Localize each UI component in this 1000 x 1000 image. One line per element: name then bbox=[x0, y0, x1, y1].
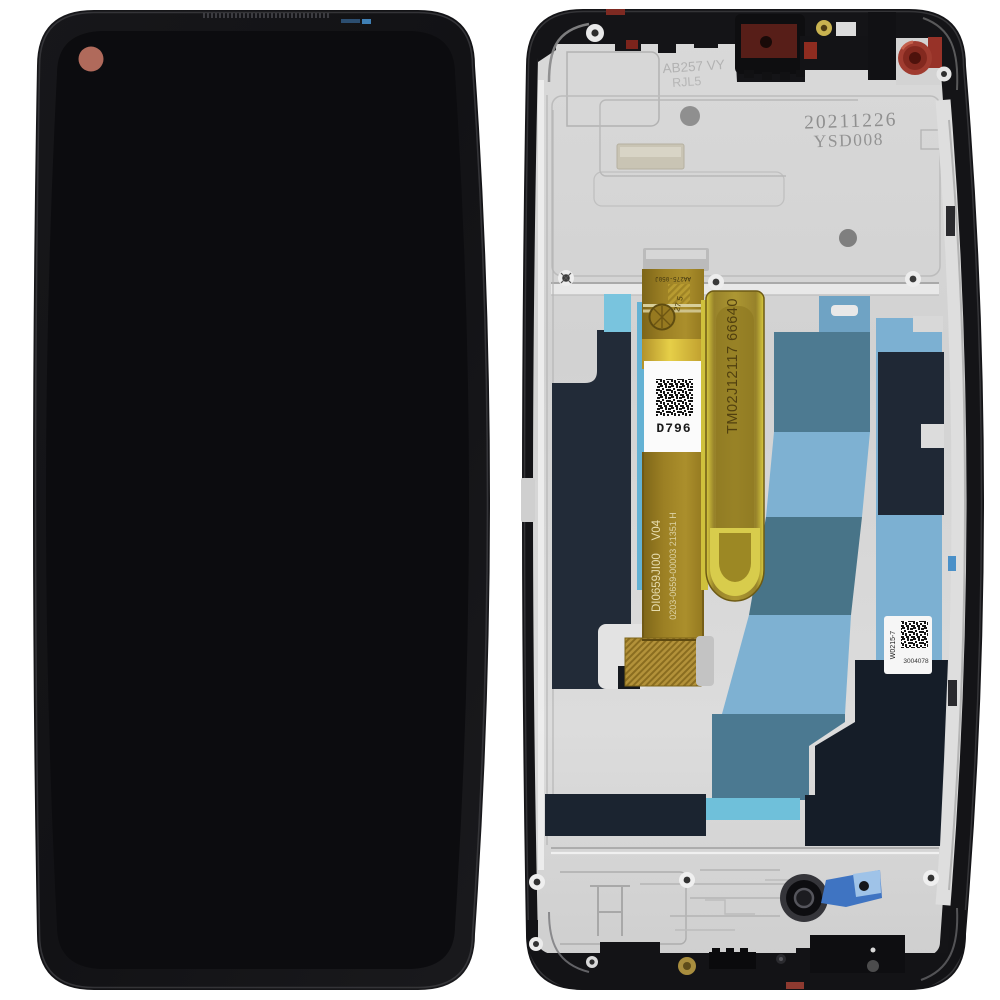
svg-text:DI0659JI00 V04: DI0659JI00 V04 bbox=[651, 519, 663, 612]
svg-text:TM02J12117 66640: TM02J12117 66640 bbox=[725, 298, 741, 434]
svg-text:0203-0659-00003 21351 H: 0203-0659-00003 21351 H bbox=[668, 512, 678, 620]
svg-text:D796: D796 bbox=[656, 421, 691, 436]
svg-text:YSD008: YSD008 bbox=[813, 129, 884, 151]
svg-text:W0215-7: W0215-7 bbox=[890, 631, 897, 660]
svg-text:RJL5: RJL5 bbox=[672, 74, 702, 90]
svg-text:3004078: 3004078 bbox=[903, 658, 929, 665]
svg-text:AA275-050J: AA275-050J bbox=[655, 275, 691, 282]
